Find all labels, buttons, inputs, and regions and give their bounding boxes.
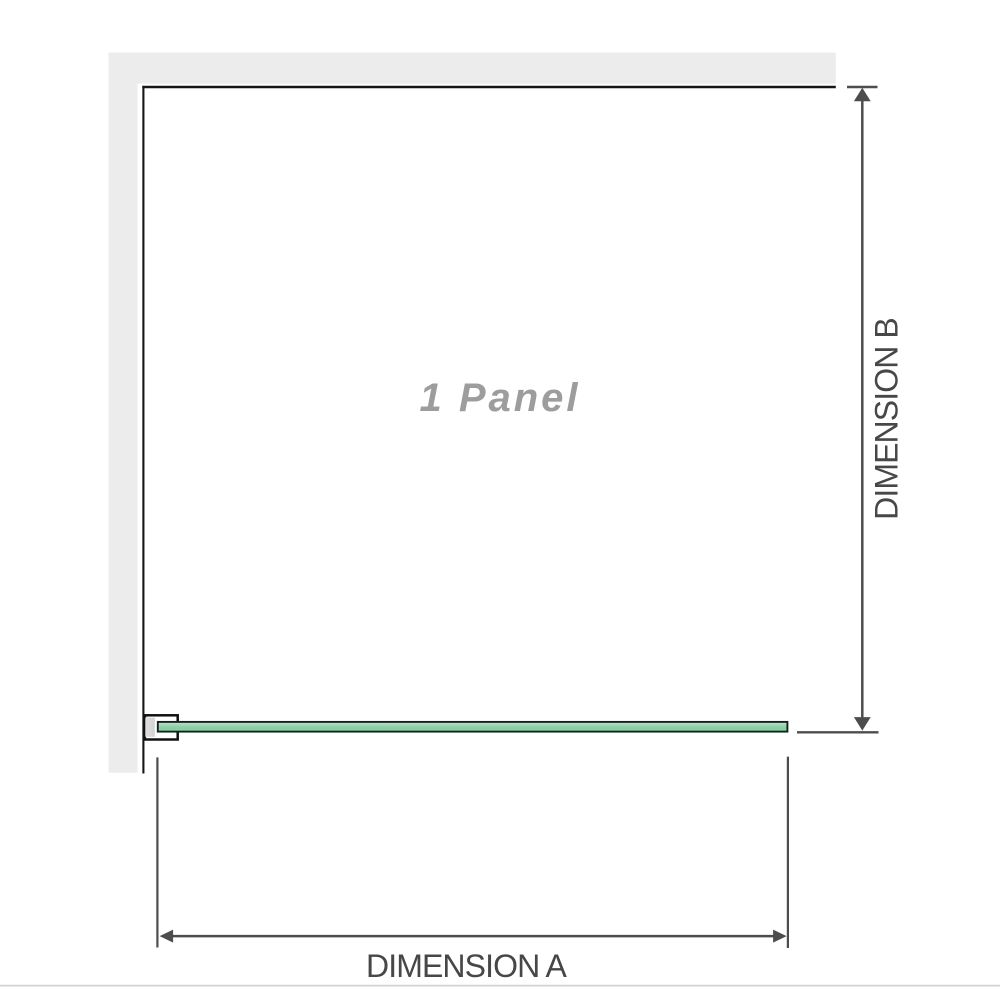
svg-text:1 Panel: 1 Panel <box>419 376 580 420</box>
svg-text:DIMENSION B: DIMENSION B <box>869 318 905 520</box>
svg-text:DIMENSION A: DIMENSION A <box>366 948 567 984</box>
